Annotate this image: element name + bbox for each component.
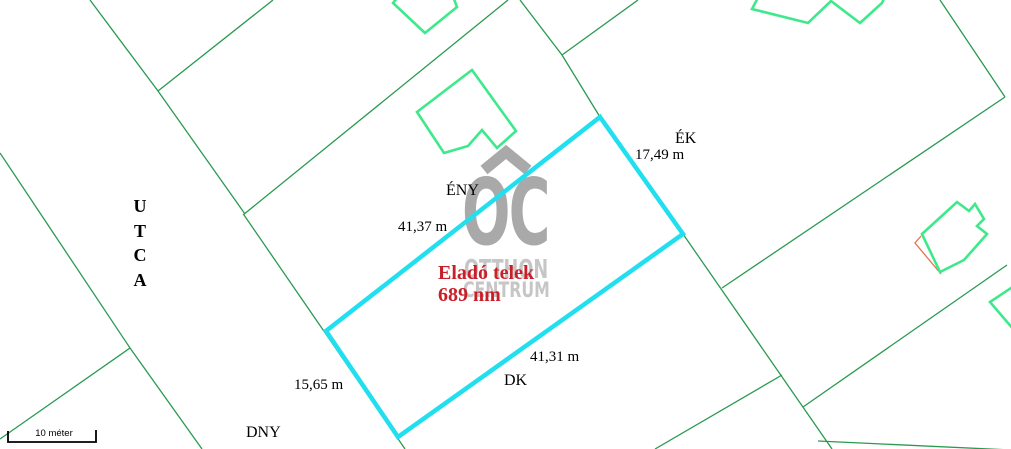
length-label-dny: 15,65 m	[294, 377, 343, 394]
scale-bar-label: 10 méter	[30, 428, 78, 439]
plot-area-label: 689 nm	[438, 285, 501, 306]
parcel-boundary-line	[0, 348, 130, 439]
cadastral-map[interactable]: OC OTTHON CENTRUM	[0, 0, 1011, 449]
parcel-boundary-line	[940, 0, 1005, 97]
parcel-boundary-line	[158, 0, 273, 91]
parcel-boundary-line	[655, 375, 782, 449]
street-name-label: UTCA	[129, 194, 151, 292]
length-label-eny: 41,37 m	[398, 219, 447, 236]
direction-label-ek: ÉK	[675, 130, 696, 148]
parcel-boundary-line	[818, 441, 1011, 449]
parcel-boundary-line	[562, 0, 638, 55]
building-footprint	[417, 70, 516, 153]
building-footprint	[922, 202, 987, 272]
parcel-boundary-line	[520, 0, 600, 117]
parcel-boundary-line	[90, 0, 245, 214]
direction-label-eny: ÉNY	[446, 182, 479, 200]
direction-label-dny: DNY	[246, 424, 281, 442]
building-footprint	[393, 0, 457, 33]
parcel-boundary-line	[803, 265, 1007, 407]
parcel-boundary-line	[0, 153, 202, 449]
building-footprint	[990, 286, 1011, 330]
length-label-dk: 41,31 m	[530, 349, 579, 366]
length-label-ek: 17,49 m	[635, 147, 684, 164]
parcel-boundary-line	[683, 234, 832, 449]
building-footprint	[752, 0, 887, 23]
direction-label-dk: DK	[504, 372, 527, 390]
plot-title-label: Eladó telek	[438, 263, 534, 284]
